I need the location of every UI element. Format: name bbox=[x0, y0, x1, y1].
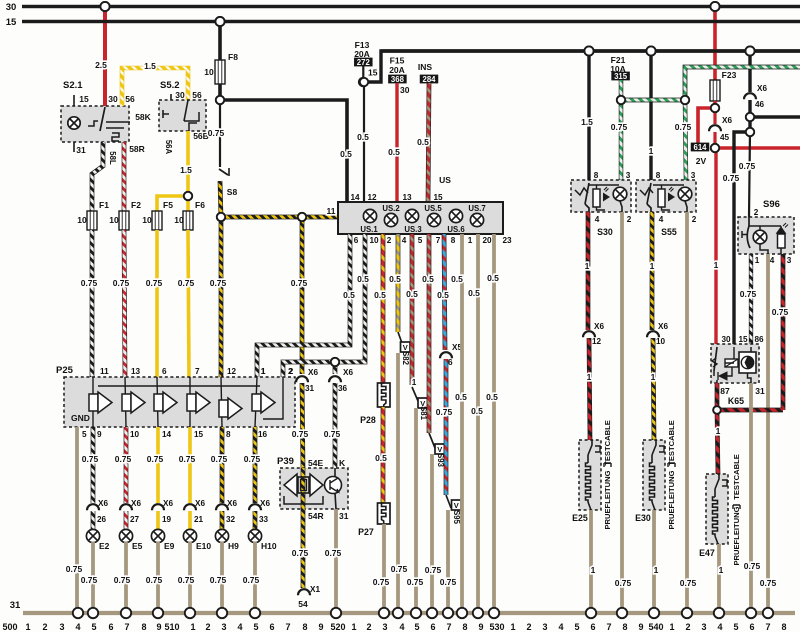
svg-text:0.5: 0.5 bbox=[357, 274, 369, 284]
svg-text:4: 4 bbox=[770, 256, 775, 265]
svg-text:X6: X6 bbox=[594, 322, 604, 331]
svg-text:10: 10 bbox=[204, 67, 214, 77]
svg-text:31: 31 bbox=[10, 600, 21, 611]
svg-text:0.75: 0.75 bbox=[113, 278, 130, 288]
svg-text:3: 3 bbox=[787, 256, 792, 265]
svg-text:2: 2 bbox=[288, 367, 293, 376]
svg-text:10: 10 bbox=[77, 215, 87, 225]
svg-text:X6: X6 bbox=[260, 499, 270, 508]
svg-text:9: 9 bbox=[97, 430, 102, 439]
svg-text:8: 8 bbox=[141, 622, 146, 632]
svg-text:0.75: 0.75 bbox=[373, 577, 390, 587]
svg-text:1: 1 bbox=[719, 565, 724, 575]
svg-text:13: 13 bbox=[131, 367, 141, 376]
svg-text:10: 10 bbox=[656, 337, 666, 346]
svg-text:8: 8 bbox=[594, 171, 599, 180]
svg-text:0.75: 0.75 bbox=[210, 278, 227, 288]
svg-text:X6: X6 bbox=[163, 499, 173, 508]
svg-text:46: 46 bbox=[755, 100, 765, 109]
svg-text:5: 5 bbox=[574, 622, 579, 632]
svg-text:0.75: 0.75 bbox=[81, 278, 98, 288]
svg-text:10: 10 bbox=[369, 236, 379, 245]
svg-text:0.5: 0.5 bbox=[486, 392, 498, 402]
svg-text:0.75: 0.75 bbox=[440, 577, 457, 587]
svg-text:6: 6 bbox=[749, 622, 754, 632]
svg-text:30: 30 bbox=[175, 90, 185, 100]
svg-text:X6: X6 bbox=[343, 368, 353, 377]
svg-text:0.5: 0.5 bbox=[422, 274, 434, 284]
svg-text:P39: P39 bbox=[277, 456, 294, 467]
svg-text:0.75: 0.75 bbox=[680, 578, 697, 588]
svg-text:4: 4 bbox=[402, 236, 407, 245]
svg-text:K65: K65 bbox=[728, 396, 744, 406]
svg-text:0.5: 0.5 bbox=[471, 406, 483, 416]
svg-text:7: 7 bbox=[124, 622, 129, 632]
svg-text:7: 7 bbox=[436, 236, 441, 245]
svg-text:14: 14 bbox=[162, 430, 172, 439]
svg-text:20A: 20A bbox=[389, 65, 405, 75]
svg-text:33: 33 bbox=[259, 515, 269, 524]
svg-text:31: 31 bbox=[339, 511, 349, 521]
svg-text:26: 26 bbox=[97, 515, 107, 524]
svg-text:US.6: US.6 bbox=[447, 225, 465, 234]
svg-text:0.75: 0.75 bbox=[739, 161, 756, 171]
svg-text:0.75: 0.75 bbox=[114, 575, 131, 585]
svg-text:30: 30 bbox=[108, 94, 118, 104]
svg-text:15: 15 bbox=[368, 68, 378, 78]
svg-text:12: 12 bbox=[592, 337, 602, 346]
svg-text:0.75: 0.75 bbox=[208, 128, 225, 138]
svg-text:0.75: 0.75 bbox=[210, 575, 227, 585]
svg-text:0.75: 0.75 bbox=[772, 307, 789, 317]
svg-text:0.75: 0.75 bbox=[292, 429, 309, 439]
svg-text:F15: F15 bbox=[390, 56, 405, 66]
svg-text:F1: F1 bbox=[99, 200, 109, 210]
svg-text:1: 1 bbox=[755, 256, 760, 265]
svg-text:1: 1 bbox=[669, 622, 674, 632]
svg-text:0.75: 0.75 bbox=[744, 561, 761, 571]
svg-text:3: 3 bbox=[691, 171, 696, 180]
svg-text:0.75: 0.75 bbox=[436, 407, 453, 417]
svg-text:S8: S8 bbox=[227, 187, 238, 197]
svg-text:X6: X6 bbox=[227, 499, 237, 508]
svg-text:0.75: 0.75 bbox=[291, 278, 308, 288]
svg-text:0.75: 0.75 bbox=[425, 565, 442, 575]
svg-text:58R: 58R bbox=[129, 144, 145, 154]
svg-text:5: 5 bbox=[414, 622, 419, 632]
svg-text:54R: 54R bbox=[308, 511, 324, 521]
svg-text:315: 315 bbox=[614, 72, 628, 81]
svg-text:X6: X6 bbox=[757, 84, 767, 93]
svg-text:23: 23 bbox=[502, 236, 512, 245]
svg-text:3: 3 bbox=[221, 622, 226, 632]
svg-text:520: 520 bbox=[330, 622, 345, 632]
svg-text:P27: P27 bbox=[358, 527, 374, 537]
svg-text:30: 30 bbox=[721, 335, 731, 344]
svg-text:7: 7 bbox=[765, 622, 770, 632]
svg-text:500: 500 bbox=[2, 622, 17, 632]
svg-text:36: 36 bbox=[338, 384, 348, 393]
svg-text:0.75: 0.75 bbox=[292, 548, 309, 558]
svg-text:TESTCABLE: TESTCABLE bbox=[732, 454, 741, 500]
svg-text:PRUEFLEITUNG: PRUEFLEITUNG bbox=[732, 506, 741, 565]
svg-text:3: 3 bbox=[626, 171, 631, 180]
svg-text:0.75: 0.75 bbox=[178, 278, 195, 288]
svg-text:0.5: 0.5 bbox=[389, 274, 401, 284]
svg-text:S95: S95 bbox=[452, 510, 461, 525]
svg-text:6: 6 bbox=[162, 367, 167, 376]
svg-text:0.5: 0.5 bbox=[451, 274, 463, 284]
svg-text:0.75: 0.75 bbox=[391, 564, 408, 574]
svg-text:10: 10 bbox=[142, 215, 152, 225]
svg-text:3: 3 bbox=[701, 622, 706, 632]
svg-text:US.7: US.7 bbox=[468, 204, 485, 213]
svg-text:E47: E47 bbox=[699, 548, 715, 558]
svg-text:8: 8 bbox=[656, 171, 661, 180]
svg-text:5: 5 bbox=[91, 622, 96, 632]
svg-text:7: 7 bbox=[446, 622, 451, 632]
svg-text:19: 19 bbox=[162, 515, 172, 524]
svg-text:2: 2 bbox=[526, 622, 531, 632]
svg-text:272: 272 bbox=[357, 58, 371, 67]
svg-text:H9: H9 bbox=[228, 541, 239, 551]
svg-text:7: 7 bbox=[285, 622, 290, 632]
svg-text:1: 1 bbox=[261, 367, 266, 376]
svg-text:S82: S82 bbox=[401, 351, 410, 366]
svg-text:1: 1 bbox=[649, 146, 654, 156]
svg-text:US.2: US.2 bbox=[382, 204, 400, 213]
svg-text:F2: F2 bbox=[131, 200, 141, 210]
svg-text:15: 15 bbox=[79, 94, 89, 104]
svg-text:X6: X6 bbox=[722, 116, 732, 125]
svg-text:F5: F5 bbox=[163, 200, 173, 210]
svg-text:0.75: 0.75 bbox=[615, 578, 632, 588]
svg-text:9: 9 bbox=[318, 622, 323, 632]
svg-text:0.75: 0.75 bbox=[82, 454, 99, 464]
svg-text:P25: P25 bbox=[56, 365, 74, 376]
svg-text:13: 13 bbox=[402, 193, 412, 202]
svg-text:0.75: 0.75 bbox=[146, 575, 163, 585]
svg-text:12: 12 bbox=[367, 193, 377, 202]
svg-text:0.75: 0.75 bbox=[115, 454, 132, 464]
svg-text:V: V bbox=[454, 501, 459, 510]
svg-text:8: 8 bbox=[462, 622, 467, 632]
svg-text:27: 27 bbox=[130, 515, 140, 524]
svg-text:E25: E25 bbox=[572, 513, 588, 523]
svg-text:58K: 58K bbox=[135, 112, 151, 122]
svg-text:4: 4 bbox=[558, 622, 563, 632]
svg-text:8: 8 bbox=[302, 622, 307, 632]
svg-text:2: 2 bbox=[205, 622, 210, 632]
svg-text:45: 45 bbox=[720, 133, 730, 142]
svg-text:2V: 2V bbox=[696, 156, 707, 166]
svg-text:20: 20 bbox=[482, 236, 492, 245]
svg-text:1: 1 bbox=[591, 565, 596, 575]
svg-text:6: 6 bbox=[354, 236, 359, 245]
svg-text:6: 6 bbox=[108, 622, 113, 632]
svg-text:2: 2 bbox=[387, 236, 392, 245]
svg-text:3: 3 bbox=[382, 622, 387, 632]
svg-text:0.75: 0.75 bbox=[81, 575, 98, 585]
svg-text:0.75: 0.75 bbox=[146, 278, 163, 288]
svg-text:9: 9 bbox=[638, 622, 643, 632]
svg-text:0.75: 0.75 bbox=[740, 289, 757, 299]
svg-text:E10: E10 bbox=[196, 541, 211, 551]
svg-text:4: 4 bbox=[399, 622, 404, 632]
svg-text:1: 1 bbox=[651, 372, 656, 382]
svg-text:56B: 56B bbox=[193, 131, 209, 141]
svg-text:31: 31 bbox=[755, 386, 765, 396]
svg-text:S96: S96 bbox=[763, 199, 780, 210]
svg-text:6: 6 bbox=[269, 622, 274, 632]
svg-text:11: 11 bbox=[327, 206, 336, 216]
svg-text:0.75: 0.75 bbox=[324, 429, 341, 439]
svg-text:1.5: 1.5 bbox=[144, 61, 156, 71]
svg-text:US.3: US.3 bbox=[404, 225, 422, 234]
svg-text:4: 4 bbox=[237, 622, 242, 632]
svg-text:0.75: 0.75 bbox=[325, 548, 342, 558]
svg-text:614: 614 bbox=[693, 143, 707, 152]
svg-text:0.5: 0.5 bbox=[375, 453, 387, 463]
svg-text:31: 31 bbox=[76, 145, 86, 155]
svg-text:21: 21 bbox=[194, 515, 204, 524]
svg-text:2: 2 bbox=[692, 215, 697, 224]
svg-text:7: 7 bbox=[195, 367, 200, 376]
svg-text:0.5: 0.5 bbox=[388, 147, 400, 157]
svg-text:0.75: 0.75 bbox=[244, 454, 261, 464]
svg-text:0.5: 0.5 bbox=[468, 288, 480, 298]
svg-text:56A: 56A bbox=[164, 140, 173, 155]
svg-text:0.75: 0.75 bbox=[760, 578, 777, 588]
svg-text:0.75: 0.75 bbox=[407, 577, 424, 587]
svg-text:510: 510 bbox=[164, 622, 179, 632]
svg-text:1: 1 bbox=[351, 622, 356, 632]
svg-text:1: 1 bbox=[25, 622, 30, 632]
svg-text:5: 5 bbox=[418, 236, 423, 245]
svg-text:8: 8 bbox=[622, 622, 627, 632]
svg-text:H10: H10 bbox=[261, 541, 277, 551]
svg-text:0.75: 0.75 bbox=[178, 575, 195, 585]
svg-text:TESTCABLE: TESTCABLE bbox=[603, 420, 612, 466]
svg-text:4: 4 bbox=[75, 622, 80, 632]
svg-text:1: 1 bbox=[468, 236, 473, 245]
svg-text:8: 8 bbox=[226, 430, 231, 439]
svg-text:87: 87 bbox=[720, 386, 730, 396]
svg-text:S2.1: S2.1 bbox=[63, 80, 83, 91]
svg-text:5: 5 bbox=[82, 430, 87, 439]
svg-text:E9: E9 bbox=[164, 541, 175, 551]
svg-text:0.75: 0.75 bbox=[147, 454, 164, 464]
svg-text:0.5: 0.5 bbox=[417, 137, 429, 147]
svg-text:5: 5 bbox=[253, 622, 258, 632]
svg-text:1: 1 bbox=[412, 378, 417, 387]
svg-text:54: 54 bbox=[298, 599, 308, 609]
svg-text:US.1: US.1 bbox=[360, 225, 378, 234]
svg-text:4: 4 bbox=[717, 622, 722, 632]
svg-text:E2: E2 bbox=[99, 541, 110, 551]
svg-text:54E: 54E bbox=[308, 458, 323, 468]
svg-text:1: 1 bbox=[190, 622, 195, 632]
svg-text:15: 15 bbox=[738, 335, 748, 344]
svg-text:12: 12 bbox=[227, 367, 237, 376]
svg-text:58L: 58L bbox=[108, 151, 117, 165]
svg-text:7: 7 bbox=[606, 622, 611, 632]
svg-text:9: 9 bbox=[478, 622, 483, 632]
svg-text:15: 15 bbox=[433, 193, 443, 202]
svg-text:56: 56 bbox=[125, 94, 135, 104]
svg-text:14: 14 bbox=[350, 193, 360, 202]
svg-text:1: 1 bbox=[510, 622, 515, 632]
svg-text:0.75: 0.75 bbox=[211, 454, 228, 464]
svg-text:TESTCABLE: TESTCABLE bbox=[667, 420, 676, 466]
svg-text:0.5: 0.5 bbox=[455, 392, 467, 402]
svg-text:11: 11 bbox=[100, 367, 109, 376]
svg-text:GND: GND bbox=[71, 413, 90, 423]
svg-text:X1: X1 bbox=[310, 585, 320, 594]
svg-text:3: 3 bbox=[542, 622, 547, 632]
svg-text:1: 1 bbox=[654, 565, 659, 575]
svg-text:1: 1 bbox=[587, 372, 592, 382]
svg-text:2: 2 bbox=[366, 622, 371, 632]
svg-text:0.75: 0.75 bbox=[723, 173, 740, 183]
svg-text:US: US bbox=[439, 175, 451, 185]
svg-text:6: 6 bbox=[448, 358, 453, 367]
svg-text:32: 32 bbox=[226, 515, 236, 524]
svg-text:0.5: 0.5 bbox=[487, 273, 499, 283]
svg-text:6: 6 bbox=[590, 622, 595, 632]
svg-text:1.5: 1.5 bbox=[581, 117, 593, 127]
svg-text:X6: X6 bbox=[658, 322, 668, 331]
svg-text:9: 9 bbox=[156, 622, 161, 632]
svg-text:F8: F8 bbox=[228, 52, 238, 62]
svg-text:2: 2 bbox=[685, 622, 690, 632]
svg-text:15: 15 bbox=[6, 17, 17, 28]
svg-text:PRUEFLEITUNG: PRUEFLEITUNG bbox=[667, 470, 676, 529]
svg-text:0.5: 0.5 bbox=[406, 289, 418, 299]
svg-text:1: 1 bbox=[716, 426, 721, 436]
svg-text:56: 56 bbox=[192, 90, 202, 100]
svg-text:0.5: 0.5 bbox=[437, 290, 449, 300]
svg-text:16: 16 bbox=[258, 430, 268, 439]
svg-text:8: 8 bbox=[781, 622, 786, 632]
svg-text:4: 4 bbox=[659, 215, 664, 224]
svg-text:1: 1 bbox=[650, 261, 655, 271]
svg-text:US.5: US.5 bbox=[424, 204, 442, 213]
svg-text:INS: INS bbox=[418, 62, 433, 72]
svg-text:530: 530 bbox=[489, 622, 504, 632]
svg-text:2: 2 bbox=[42, 622, 47, 632]
svg-text:30: 30 bbox=[400, 85, 410, 95]
svg-text:S55: S55 bbox=[661, 227, 677, 237]
svg-text:2: 2 bbox=[754, 208, 759, 217]
svg-text:P28: P28 bbox=[360, 415, 376, 425]
svg-text:8: 8 bbox=[451, 236, 456, 245]
svg-text:1: 1 bbox=[714, 260, 719, 270]
svg-text:4: 4 bbox=[595, 215, 600, 224]
svg-text:0.5: 0.5 bbox=[343, 290, 355, 300]
svg-text:10: 10 bbox=[109, 215, 119, 225]
svg-text:0.5: 0.5 bbox=[357, 132, 369, 142]
svg-text:0.75: 0.75 bbox=[179, 454, 196, 464]
svg-text:0.75: 0.75 bbox=[611, 122, 628, 132]
svg-text:0.75: 0.75 bbox=[66, 564, 83, 574]
svg-text:31: 31 bbox=[305, 384, 315, 393]
svg-text:X6: X6 bbox=[308, 368, 318, 377]
svg-text:X6: X6 bbox=[195, 499, 205, 508]
svg-text:S30: S30 bbox=[597, 227, 613, 237]
svg-text:10: 10 bbox=[130, 430, 140, 439]
svg-text:PRUEFLEITUNG: PRUEFLEITUNG bbox=[603, 470, 612, 529]
svg-text:6: 6 bbox=[430, 622, 435, 632]
svg-text:F23: F23 bbox=[722, 70, 737, 80]
svg-text:0.75: 0.75 bbox=[675, 122, 692, 132]
svg-text:15: 15 bbox=[194, 430, 204, 439]
svg-text:1: 1 bbox=[585, 261, 590, 271]
svg-text:0.75: 0.75 bbox=[243, 575, 260, 585]
svg-text:E5: E5 bbox=[132, 541, 143, 551]
svg-text:K: K bbox=[339, 458, 346, 468]
svg-text:2.5: 2.5 bbox=[95, 60, 107, 70]
svg-text:3: 3 bbox=[59, 622, 64, 632]
svg-text:X6: X6 bbox=[131, 499, 141, 508]
svg-text:368: 368 bbox=[391, 75, 405, 84]
svg-text:284: 284 bbox=[422, 75, 436, 84]
svg-text:30: 30 bbox=[6, 2, 17, 13]
svg-text:F6: F6 bbox=[195, 200, 205, 210]
svg-text:10: 10 bbox=[174, 215, 184, 225]
svg-text:86: 86 bbox=[754, 335, 764, 344]
svg-text:540: 540 bbox=[648, 622, 663, 632]
svg-text:X6: X6 bbox=[98, 499, 108, 508]
svg-text:5: 5 bbox=[733, 622, 738, 632]
svg-text:2: 2 bbox=[627, 215, 632, 224]
svg-text:0.5: 0.5 bbox=[374, 290, 386, 300]
svg-text:1.5: 1.5 bbox=[180, 165, 192, 175]
svg-text:0.5: 0.5 bbox=[340, 149, 352, 159]
svg-text:E30: E30 bbox=[635, 513, 651, 523]
